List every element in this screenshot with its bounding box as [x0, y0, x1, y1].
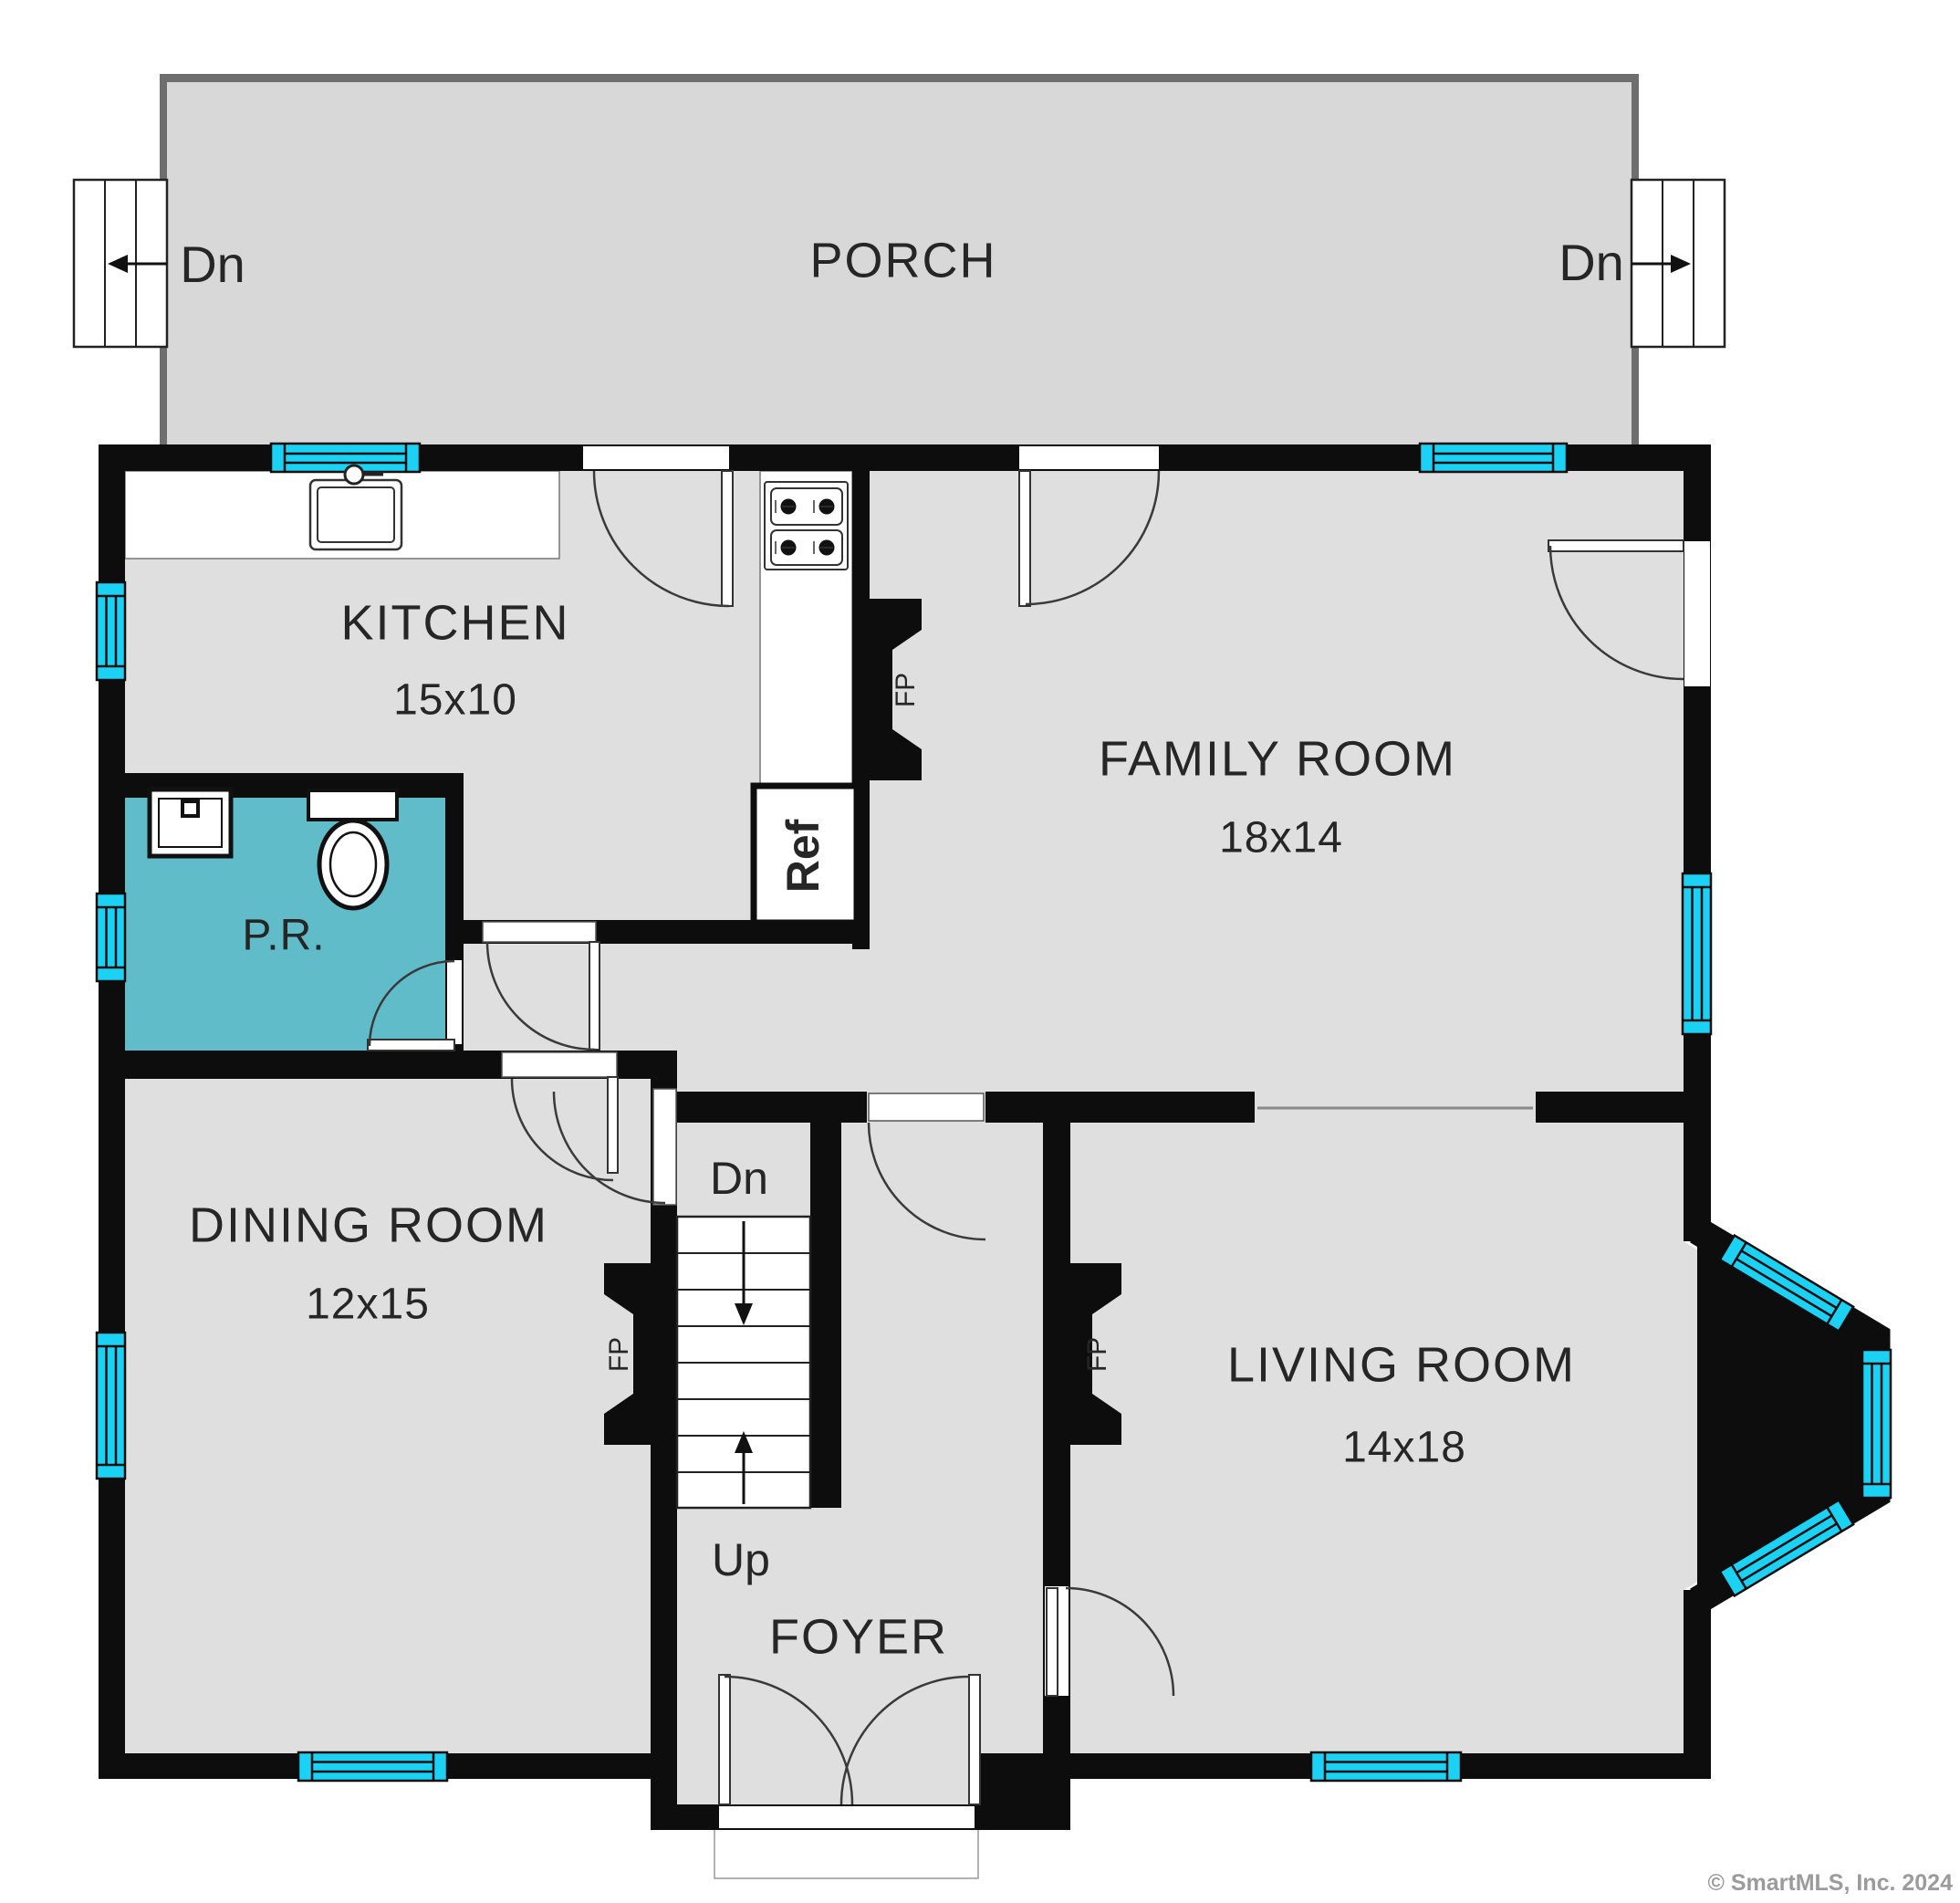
refrigerator-label: Ref: [777, 819, 829, 893]
wall-right-lower: [1684, 1590, 1711, 1779]
window-living-south: [1311, 1752, 1461, 1781]
window-powder-room-west: [97, 894, 125, 981]
staircase: [677, 1217, 810, 1508]
living-room-dims: 14x18: [1342, 1424, 1466, 1472]
powder-room-sink: [150, 789, 231, 856]
window-family-east: [1683, 873, 1711, 1034]
powder-room-label: P.R.: [242, 912, 325, 960]
window-kitchen-north: [271, 444, 420, 472]
wall-famliv-stub: [1536, 1092, 1684, 1123]
window-dining-west: [97, 1333, 125, 1479]
porch-stairs-left: [74, 180, 167, 347]
porch-stairs-right: [1632, 180, 1725, 347]
window-kitchen-west: [97, 582, 125, 680]
living-room-label: LIVING ROOM: [1227, 1337, 1576, 1392]
toilet-tank: [308, 790, 397, 820]
refrigerator: Ref: [754, 786, 857, 923]
window-dining-south: [298, 1752, 447, 1781]
porch-label: PORCH: [809, 233, 996, 288]
porch-stairs-right-label: Dn: [1559, 234, 1624, 291]
wall-living-west: [1043, 1123, 1070, 1830]
kitchen-label: KITCHEN: [340, 595, 569, 650]
kitchen-dims: 15x10: [393, 676, 517, 725]
fireplace-living-label: FP: [1082, 1337, 1112, 1372]
family-room-dims: 18x14: [1219, 814, 1343, 863]
stove: [765, 482, 848, 570]
wall-hall-north-b: [985, 1092, 1255, 1123]
porch-stairs-left-label: Dn: [180, 235, 245, 293]
fireplace-family-label: FP: [891, 673, 921, 707]
dining-room-label: DINING ROOM: [189, 1197, 548, 1252]
stairs-up-label: Up: [712, 1534, 770, 1585]
floor-fills: [125, 471, 1863, 1804]
family-room-label: FAMILY ROOM: [1099, 731, 1456, 786]
window-family-north: [1420, 444, 1567, 472]
faucet-icon: [345, 465, 363, 484]
foyer-label: FOYER: [769, 1609, 948, 1664]
floor-plan: FP FP FP Ref: [0, 0, 1960, 1903]
dining-room-dims: 12x15: [306, 1281, 430, 1329]
wall-stair-east: [810, 1123, 841, 1508]
watermark: © SmartMLS, Inc. 2024: [1707, 1870, 1953, 1896]
fireplace-dining-label: FP: [604, 1337, 634, 1372]
porch-top-edge: [160, 74, 1639, 82]
front-stoop: [714, 1828, 978, 1878]
wall-hall-north-a: [653, 1092, 867, 1123]
window-bay-middle: [1862, 1350, 1891, 1498]
stairs-down-label: Dn: [710, 1153, 768, 1204]
